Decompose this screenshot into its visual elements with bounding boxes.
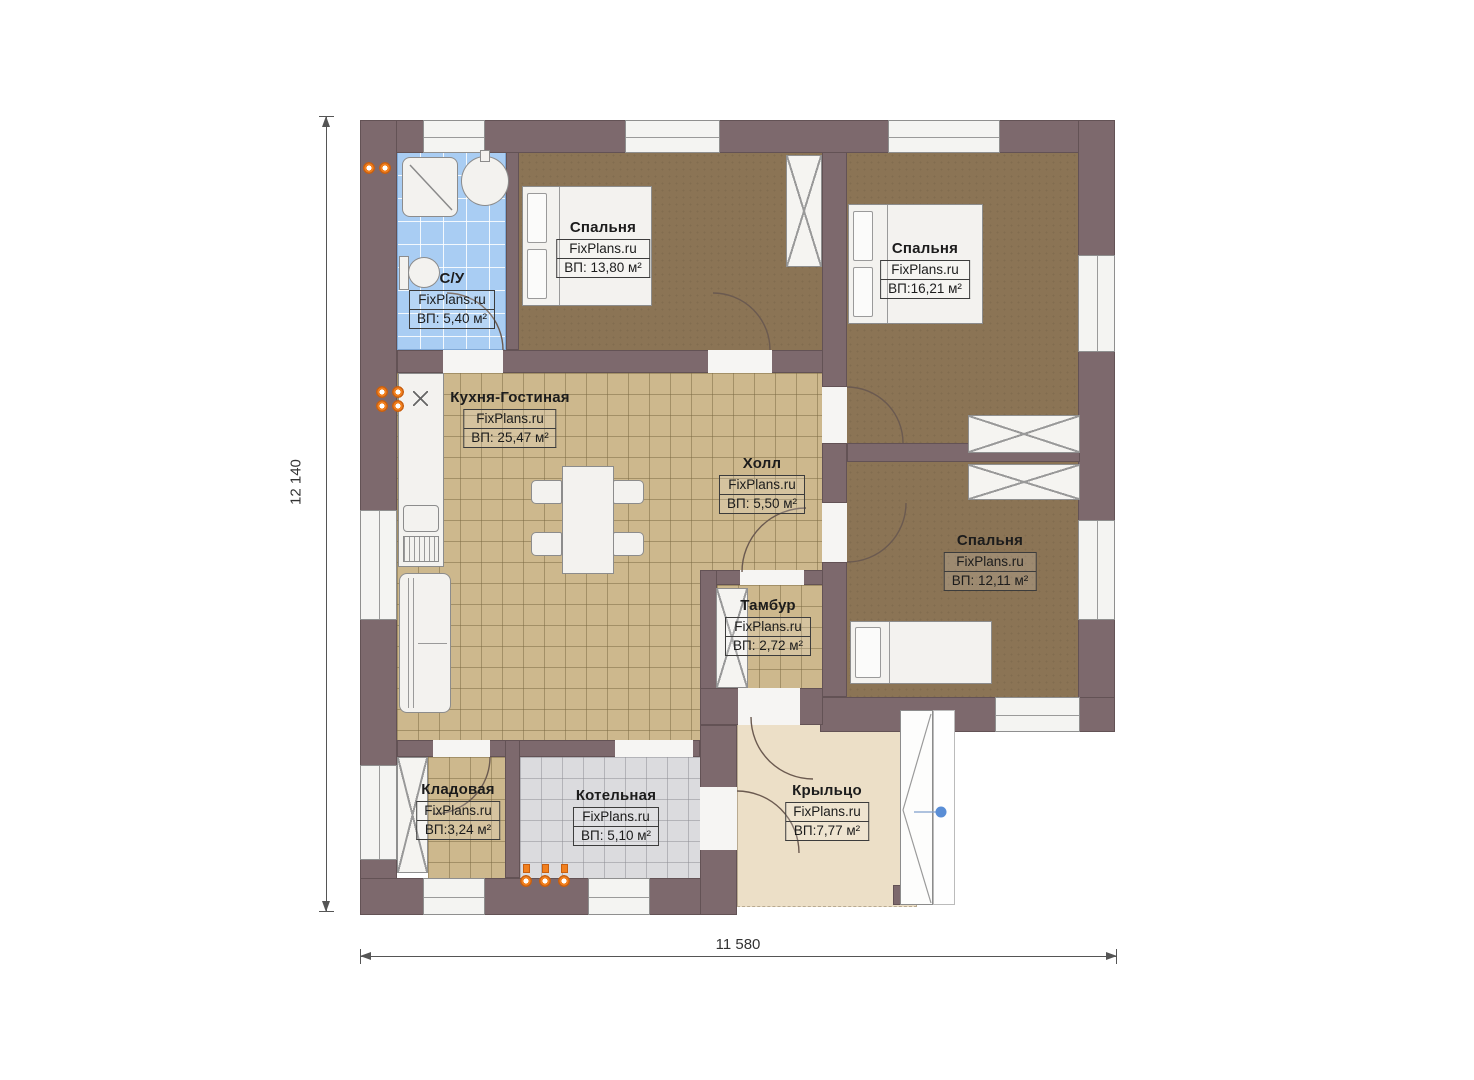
room-watermark: FixPlans.ru bbox=[573, 807, 659, 827]
room-label-hall: Холл FixPlans.ru ВП: 5,50 м² bbox=[719, 455, 805, 514]
dimension-arrow-down bbox=[322, 901, 330, 912]
wall-hall-east-upper bbox=[822, 152, 847, 387]
room-label-bedroom-1: Спальня FixPlans.ru ВП: 13,80 м² bbox=[556, 219, 650, 278]
window-bottom-1 bbox=[423, 878, 485, 915]
window-bathroom bbox=[423, 120, 485, 153]
porch-stairs-edge bbox=[933, 710, 955, 905]
room-watermark: FixPlans.ru bbox=[409, 290, 495, 310]
dimension-height-label: 12 140 bbox=[288, 459, 305, 505]
room-label-bedroom-2: Спальня FixPlans.ru ВП:16,21 м² bbox=[880, 240, 970, 299]
window-bottom-2 bbox=[588, 878, 650, 915]
room-area: ВП: 13,80 м² bbox=[556, 259, 650, 278]
room-area: ВП:16,21 м² bbox=[880, 280, 970, 299]
room-info-box: FixPlans.ru ВП: 25,47 м² bbox=[463, 409, 557, 448]
dimension-arrow-left bbox=[360, 952, 371, 960]
bedroom-2-door-opening bbox=[822, 387, 847, 443]
storage-door-opening bbox=[433, 740, 490, 757]
room-name: Тамбур bbox=[740, 597, 796, 614]
room-label-kitchen-living: Кухня-Гостиная FixPlans.ru ВП: 25,47 м² bbox=[450, 389, 569, 448]
wall-right bbox=[1078, 120, 1115, 732]
wardrobe-bedroom-2 bbox=[968, 415, 1080, 453]
wardrobe-bedroom-1 bbox=[786, 155, 822, 267]
room-label-bedroom-3: Спальня FixPlans.ru ВП: 12,11 м² bbox=[944, 532, 1037, 591]
room-info-box: FixPlans.ru ВП: 5,40 м² bbox=[409, 290, 495, 329]
window-storage-left bbox=[360, 765, 397, 860]
room-watermark: FixPlans.ru bbox=[725, 617, 811, 637]
wall-storage-boiler-divider bbox=[505, 740, 520, 878]
room-name: Холл bbox=[743, 455, 781, 472]
kitchen-unit-x-icon bbox=[413, 391, 428, 406]
boiler-room-opening bbox=[615, 740, 693, 757]
room-area: ВП: 5,40 м² bbox=[409, 310, 495, 329]
room-area: ВП: 5,10 м² bbox=[573, 827, 659, 846]
window-bedroom-2-right bbox=[1078, 255, 1115, 352]
room-info-box: FixPlans.ru ВП:16,21 м² bbox=[880, 260, 970, 299]
room-watermark: FixPlans.ru bbox=[556, 239, 650, 259]
room-name: Спальня bbox=[892, 240, 958, 257]
kitchen-sink-drainer bbox=[403, 536, 439, 562]
room-area: ВП: 25,47 м² bbox=[463, 429, 557, 448]
room-watermark: FixPlans.ru bbox=[719, 475, 805, 495]
wall-vestibule-left bbox=[700, 570, 717, 700]
room-info-box: FixPlans.ru ВП: 13,80 м² bbox=[556, 239, 650, 278]
room-watermark: FixPlans.ru bbox=[880, 260, 970, 280]
chair bbox=[531, 480, 562, 504]
window-bedroom-3-right bbox=[1078, 520, 1115, 620]
window-bedroom-3-bottom bbox=[995, 697, 1080, 732]
dimension-width-label: 11 580 bbox=[716, 936, 761, 953]
boiler-porch-door-opening bbox=[700, 787, 737, 850]
room-name: Котельная bbox=[576, 787, 656, 804]
bed-bedroom-3 bbox=[850, 621, 992, 684]
window-kitchen-left bbox=[360, 510, 397, 620]
room-watermark: FixPlans.ru bbox=[416, 801, 500, 821]
radiator-icon bbox=[376, 386, 404, 412]
room-area: ВП: 5,50 м² bbox=[719, 495, 805, 514]
sink-faucet bbox=[480, 150, 490, 162]
window-bedroom-1 bbox=[625, 120, 720, 153]
dining-table bbox=[562, 466, 614, 574]
room-info-box: FixPlans.ru ВП: 2,72 м² bbox=[725, 617, 811, 656]
dimension-line-vertical bbox=[326, 116, 327, 912]
room-name: Крыльцо bbox=[792, 782, 862, 799]
room-label-storage: Кладовая FixPlans.ru ВП:3,24 м² bbox=[416, 781, 500, 840]
bedroom-1-door-opening bbox=[708, 350, 772, 373]
room-name: Спальня bbox=[570, 219, 636, 236]
shower-tray bbox=[402, 157, 458, 217]
room-name: Кухня-Гостиная bbox=[450, 389, 569, 406]
room-name: Кладовая bbox=[421, 781, 494, 798]
wall-hall-east-lower bbox=[822, 562, 847, 697]
room-label-boiler-room: Котельная FixPlans.ru ВП: 5,10 м² bbox=[573, 787, 659, 846]
room-info-box: FixPlans.ru ВП: 12,11 м² bbox=[944, 552, 1037, 591]
dimension-line-horizontal bbox=[360, 956, 1117, 957]
bedroom-3-door-opening bbox=[822, 503, 847, 562]
bathroom-sink bbox=[461, 156, 509, 206]
room-name: Спальня bbox=[957, 532, 1023, 549]
room-name: С/У bbox=[440, 270, 465, 287]
room-info-box: FixPlans.ru ВП:7,77 м² bbox=[785, 802, 869, 841]
room-info-box: FixPlans.ru ВП:3,24 м² bbox=[416, 801, 500, 840]
room-area: ВП: 2,72 м² bbox=[725, 637, 811, 656]
sofa bbox=[399, 573, 451, 713]
room-area: ВП:3,24 м² bbox=[416, 821, 500, 840]
bathroom-door-opening bbox=[443, 350, 503, 373]
porch-stairs bbox=[900, 710, 933, 905]
room-watermark: FixPlans.ru bbox=[785, 802, 869, 822]
room-label-bathroom: С/У FixPlans.ru ВП: 5,40 м² bbox=[409, 270, 495, 329]
room-label-porch: Крыльцо FixPlans.ru ВП:7,77 м² bbox=[785, 782, 869, 841]
window-bedroom-2-top bbox=[888, 120, 1000, 153]
room-label-vestibule: Тамбур FixPlans.ru ВП: 2,72 м² bbox=[725, 597, 811, 656]
wardrobe-bedroom-3 bbox=[968, 464, 1080, 500]
room-info-box: FixPlans.ru ВП: 5,10 м² bbox=[573, 807, 659, 846]
chair bbox=[613, 532, 644, 556]
radiator-icon bbox=[363, 162, 391, 174]
entry-door-opening bbox=[738, 688, 800, 725]
room-watermark: FixPlans.ru bbox=[944, 552, 1037, 572]
wall-hall-east-mid bbox=[822, 443, 847, 503]
kitchen-sink-bowl bbox=[403, 505, 439, 532]
boiler-radiators-icon bbox=[520, 864, 570, 887]
room-area: ВП: 12,11 м² bbox=[944, 572, 1037, 591]
dimension-arrow-right bbox=[1106, 952, 1117, 960]
chair bbox=[613, 480, 644, 504]
room-info-box: FixPlans.ru ВП: 5,50 м² bbox=[719, 475, 805, 514]
floor-plan-canvas: С/У FixPlans.ru ВП: 5,40 м² Спальня FixP… bbox=[0, 0, 1474, 1080]
room-area: ВП:7,77 м² bbox=[785, 822, 869, 841]
dimension-arrow-up bbox=[322, 116, 330, 127]
vestibule-door-opening bbox=[740, 570, 804, 585]
room-watermark: FixPlans.ru bbox=[463, 409, 557, 429]
chair bbox=[531, 532, 562, 556]
